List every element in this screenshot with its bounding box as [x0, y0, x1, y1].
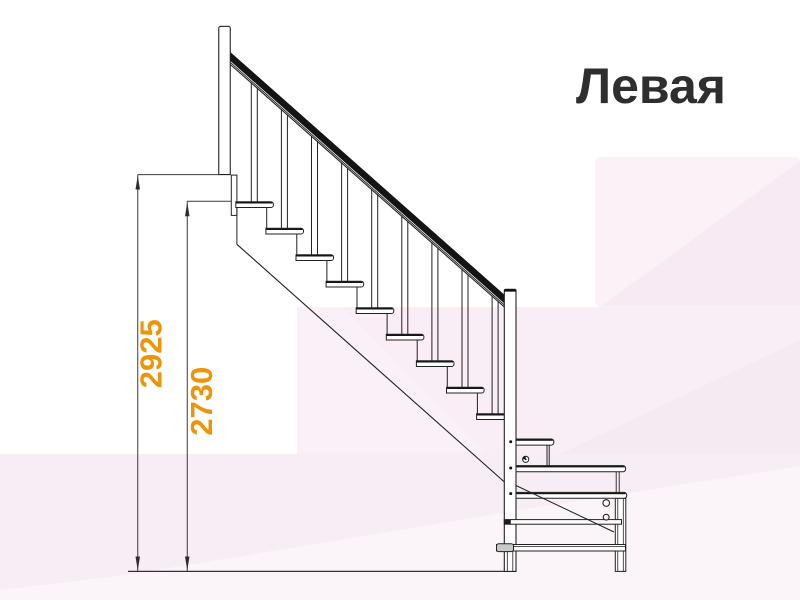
svg-text:2925: 2925: [134, 319, 169, 388]
svg-text:Левая: Левая: [576, 58, 726, 114]
svg-text:2730: 2730: [184, 367, 219, 436]
